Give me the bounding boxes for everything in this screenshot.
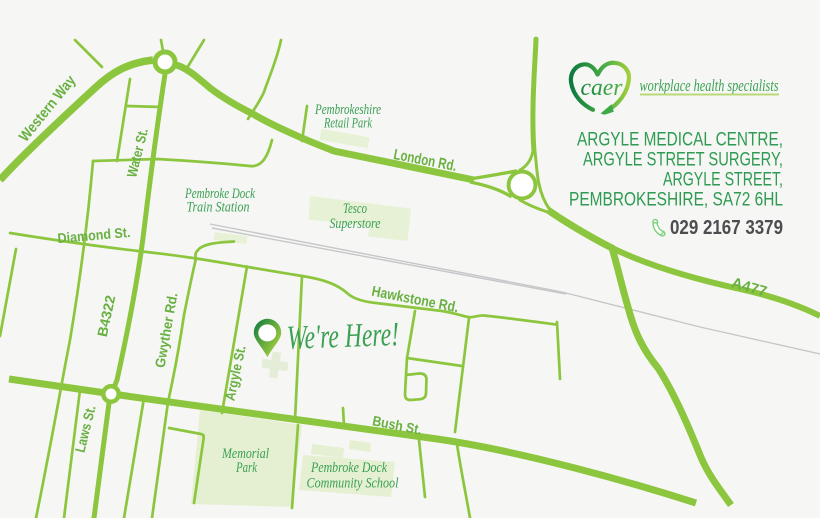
svg-text:workplace health specialists: workplace health specialists bbox=[640, 76, 779, 95]
svg-text:ARGYLE MEDICAL CENTRE,: ARGYLE MEDICAL CENTRE, bbox=[577, 129, 783, 151]
svg-text:PEMBROKESHIRE, SA72 6HL: PEMBROKESHIRE, SA72 6HL bbox=[569, 189, 783, 211]
svg-text:We're Here!: We're Here! bbox=[286, 316, 399, 357]
svg-text:Pembroke Dock: Pembroke Dock bbox=[310, 460, 387, 476]
svg-text:ARGYLE STREET,: ARGYLE STREET, bbox=[663, 169, 783, 191]
svg-text:Train Station: Train Station bbox=[187, 200, 250, 216]
svg-text:029 2167 3379: 029 2167 3379 bbox=[670, 216, 783, 239]
svg-text:Tesco: Tesco bbox=[343, 201, 367, 217]
svg-text:Retail Park: Retail Park bbox=[323, 116, 372, 132]
svg-text:Community School: Community School bbox=[307, 476, 399, 492]
svg-text:ARGYLE STREET SURGERY,: ARGYLE STREET SURGERY, bbox=[583, 149, 783, 171]
svg-text:Park: Park bbox=[235, 460, 257, 476]
svg-text:caer: caer bbox=[581, 75, 624, 101]
svg-text:Superstore: Superstore bbox=[330, 216, 381, 232]
